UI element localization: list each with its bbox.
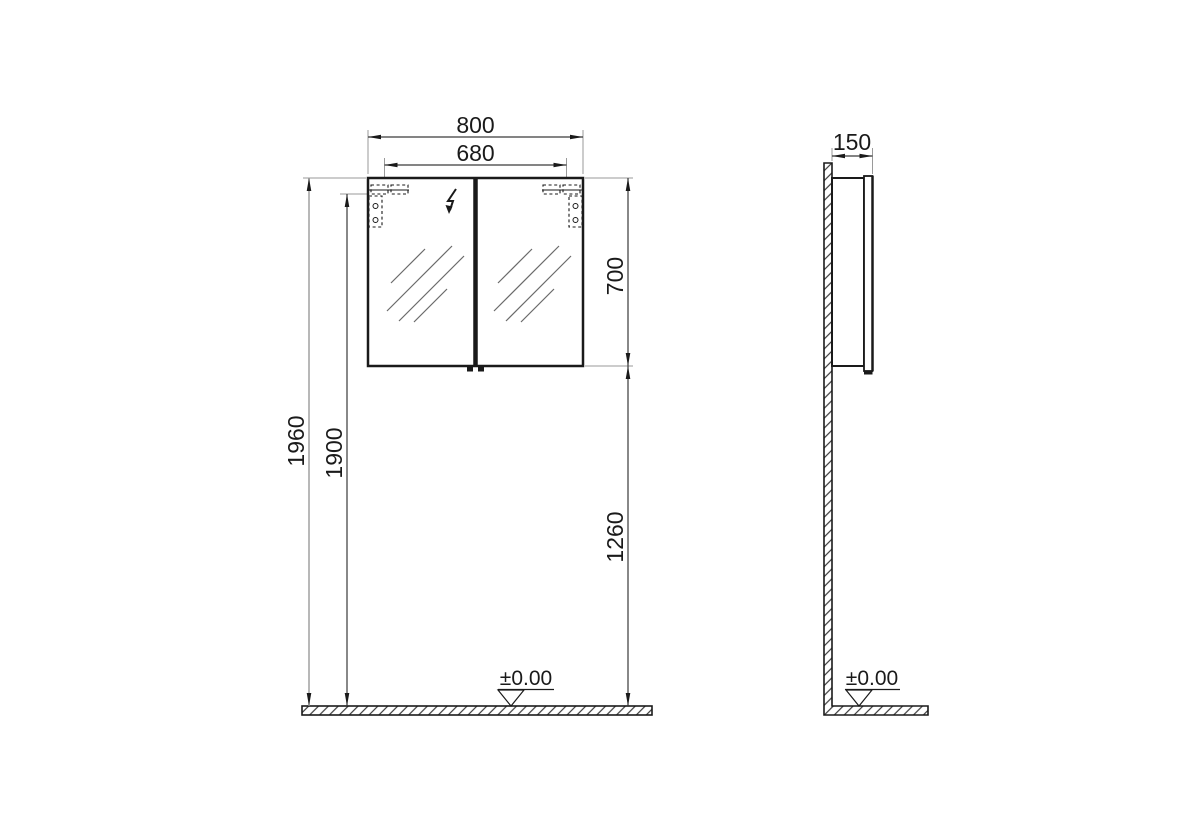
level-triangle-icon — [498, 690, 524, 706]
dim-680-label: 680 — [456, 140, 494, 166]
floor-level-label-front: ±0.00 — [500, 667, 552, 690]
dimension-overall-height: 1960 — [283, 178, 311, 706]
floor-level-marker-side: ±0.00 — [845, 667, 900, 706]
dimension-floor-to-cabinet: 1260 — [602, 366, 630, 706]
dim-800-label: 800 — [456, 112, 494, 138]
dimension-mounting-height: 1900 — [321, 194, 349, 706]
drawing-canvas: 800 680 700 1260 1960 — [0, 0, 1190, 840]
side-view: 150 ±0.00 — [824, 129, 928, 715]
technical-drawing: 800 680 700 1260 1960 — [0, 0, 1190, 840]
dim-1960-label: 1960 — [283, 415, 309, 466]
dimension-cabinet-height: 700 — [602, 178, 630, 366]
front-view: 800 680 700 1260 1960 — [283, 112, 652, 715]
cabinet-body-side — [832, 178, 864, 366]
dim-700-label: 700 — [602, 257, 628, 295]
floor-section-front — [302, 706, 652, 715]
floor-level-marker-front: ±0.00 — [498, 667, 554, 706]
floor-level-label-side: ±0.00 — [846, 667, 898, 690]
cabinet-door-side — [864, 176, 873, 371]
dimension-width-inner: 680 — [385, 140, 567, 167]
dim-150-label: 150 — [833, 129, 871, 155]
dim-1900-label: 1900 — [321, 427, 347, 478]
door-handle-left — [467, 366, 473, 372]
level-triangle-icon — [846, 690, 872, 706]
dimension-width-outer: 800 — [368, 112, 583, 139]
door-handle-right — [478, 366, 484, 372]
dimension-depth: 150 — [832, 129, 873, 158]
dim-1260-label: 1260 — [602, 511, 628, 562]
door-handle-side — [864, 371, 873, 375]
